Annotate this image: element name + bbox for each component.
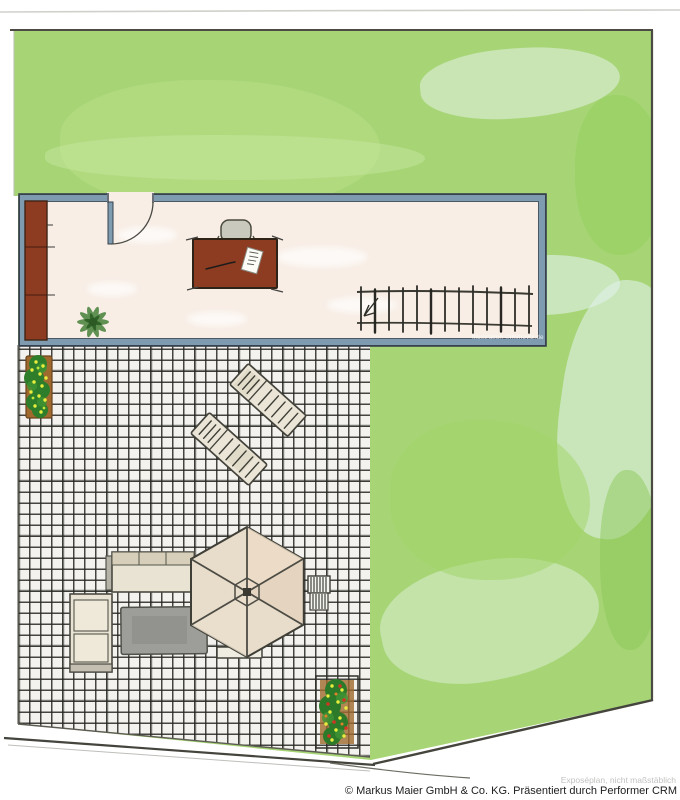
floor-highlight [87, 282, 137, 296]
room-floor [26, 201, 539, 339]
floor-highlight [277, 247, 367, 267]
copyright-line: © Markus Maier GmbH & Co. KG. Präsentier… [345, 785, 677, 797]
terrace-tiles [18, 345, 370, 757]
floor-highlight [327, 297, 397, 313]
lawn-patch [575, 95, 665, 255]
lawn-patch [45, 135, 425, 180]
lawn-patch [600, 470, 660, 650]
illustrator-watermark: Illustration ©immoviz.de [472, 334, 544, 341]
floorplan-canvas: Illustration ©immoviz.de Exposéplan, nic… [0, 0, 680, 800]
floor-highlight [117, 227, 177, 243]
scale-disclaimer: Exposéplan, nicht maßstäblich [561, 775, 676, 785]
floor-highlight [187, 312, 247, 326]
room [20, 195, 545, 345]
